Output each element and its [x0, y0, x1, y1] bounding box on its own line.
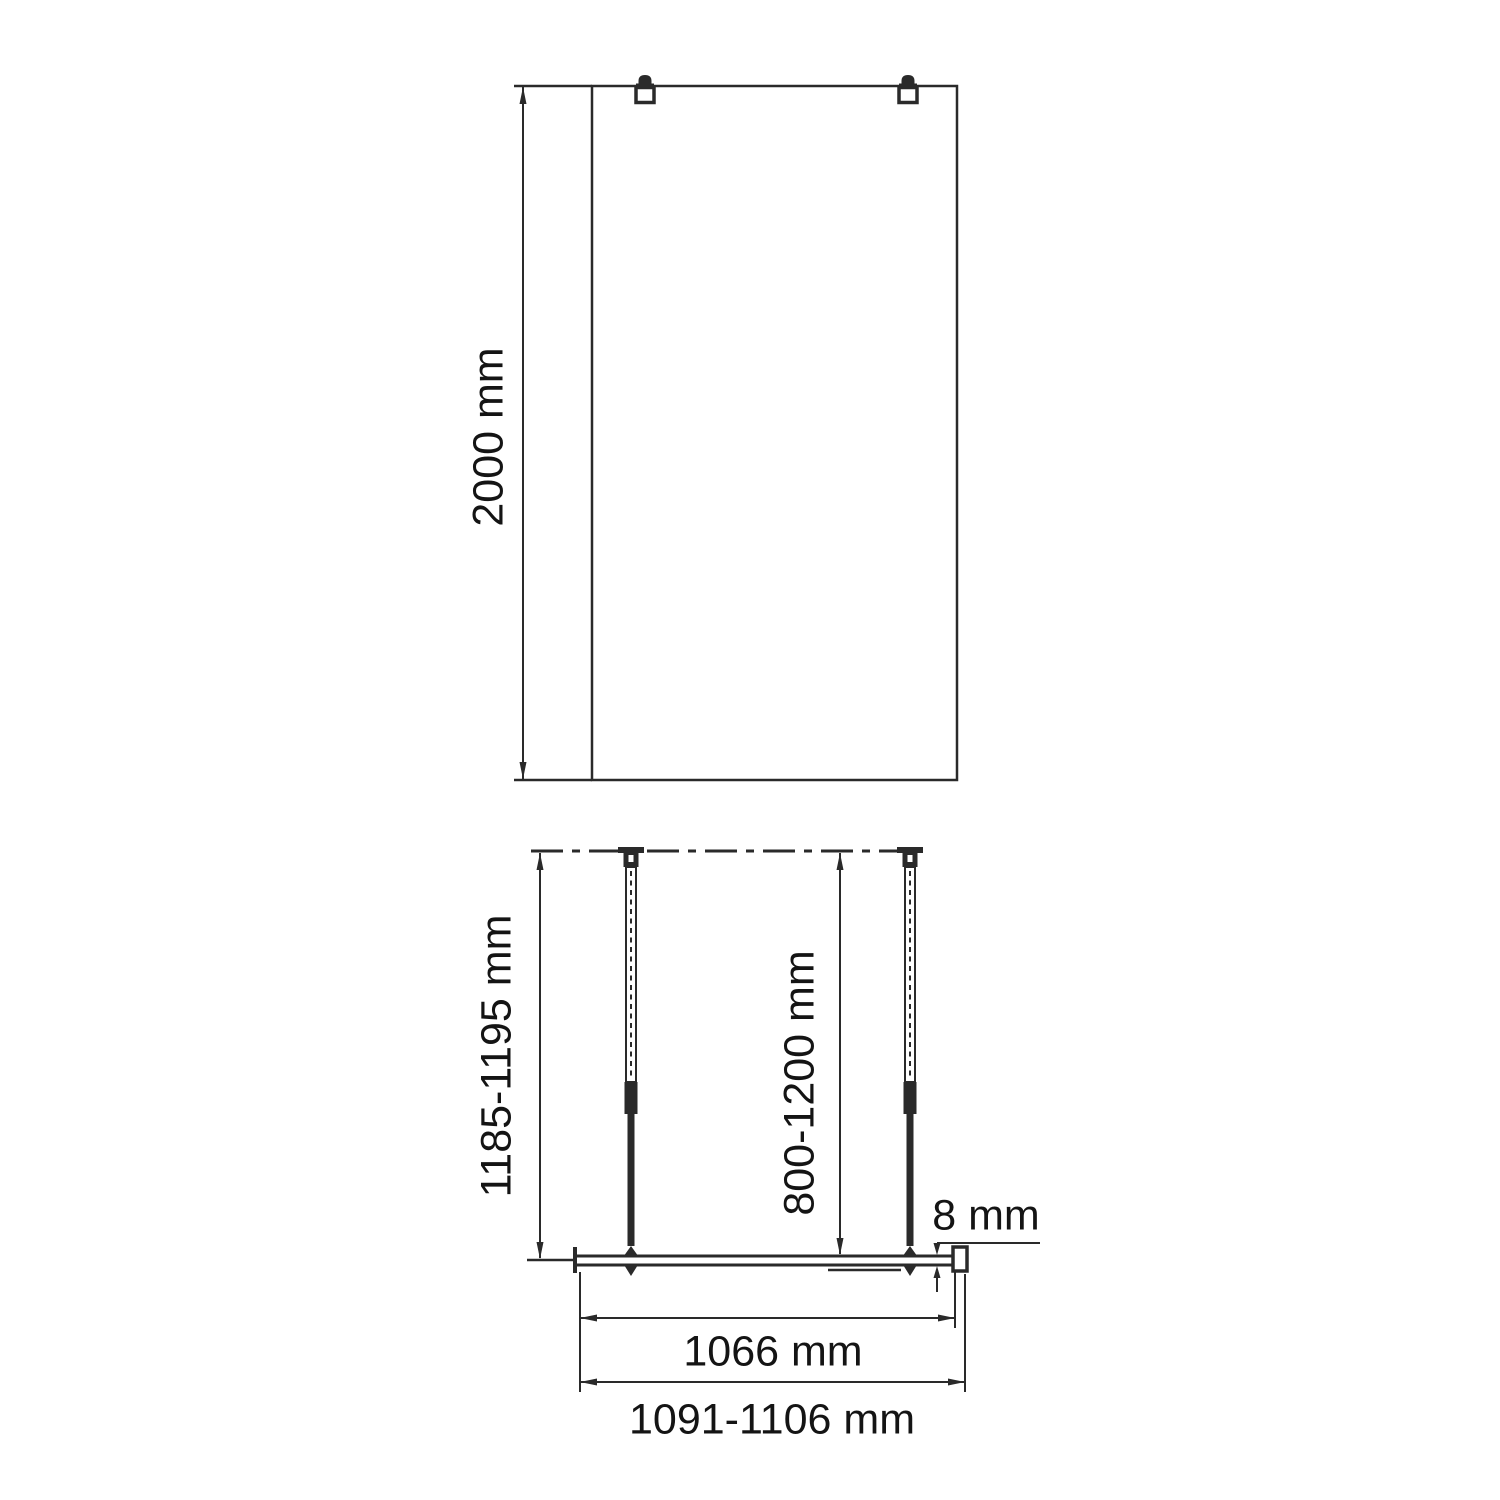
dimension-label-height: 2000 mm [468, 347, 511, 526]
wall-clamp-right [899, 75, 917, 103]
arrowhead-down [520, 762, 527, 779]
arrowhead-down [537, 1242, 544, 1259]
bar-outer-tube [905, 867, 915, 1082]
drawing-linework [0, 0, 1500, 1500]
arrowhead-up [934, 1266, 941, 1278]
bar-sleeve [625, 1082, 638, 1114]
arrowhead-left [580, 1379, 597, 1386]
arrowhead-down [837, 1238, 844, 1255]
clamp-body [899, 88, 917, 103]
shower-screen-technical-drawing: 2000 mm 1185-1195 mm 800-1200 mm 8 mm 10… [0, 0, 1500, 1500]
glass-thickness-dimension [934, 1243, 1041, 1292]
arrowhead-right [948, 1379, 965, 1386]
wall-clamp-left [636, 75, 654, 103]
overall-width-dimension [580, 1379, 965, 1386]
dimension-label-glass-width: 1066 mm [683, 1331, 862, 1374]
glass-end-bracket-right [953, 1247, 967, 1271]
bar-wall-flange [618, 847, 644, 853]
support-bar-left [618, 847, 644, 1276]
bar-rod [907, 1114, 914, 1246]
arrowhead-down [934, 1243, 941, 1255]
dimension-label-depth: 1185-1195 mm [476, 915, 519, 1198]
clamp-body [636, 88, 654, 103]
dimension-label-glass-thickness: 8 mm [932, 1195, 1040, 1238]
dimension-label-bar-length: 800-1200 mm [779, 950, 822, 1215]
glass-width-dimension [580, 1315, 955, 1322]
bar-rod [628, 1114, 635, 1246]
clamp-dome [902, 75, 915, 86]
arrowhead-up [520, 87, 527, 104]
glass-panel-outline [592, 86, 957, 780]
arrowhead-up [537, 853, 544, 870]
arrowhead-right [938, 1315, 955, 1322]
bar-length-dimension [828, 853, 901, 1270]
front-view [514, 75, 957, 780]
bar-outer-tube [626, 867, 636, 1082]
arrowhead-up [837, 853, 844, 870]
height-dimension [520, 87, 527, 779]
dimension-label-overall-width: 1091-1106 mm [629, 1399, 915, 1442]
bar-wall-flange [897, 847, 923, 853]
depth-dimension [527, 853, 574, 1260]
arrowhead-left [580, 1315, 597, 1322]
clamp-dome [639, 75, 652, 86]
bar-sleeve [904, 1082, 917, 1114]
support-bar-right [897, 847, 923, 1276]
